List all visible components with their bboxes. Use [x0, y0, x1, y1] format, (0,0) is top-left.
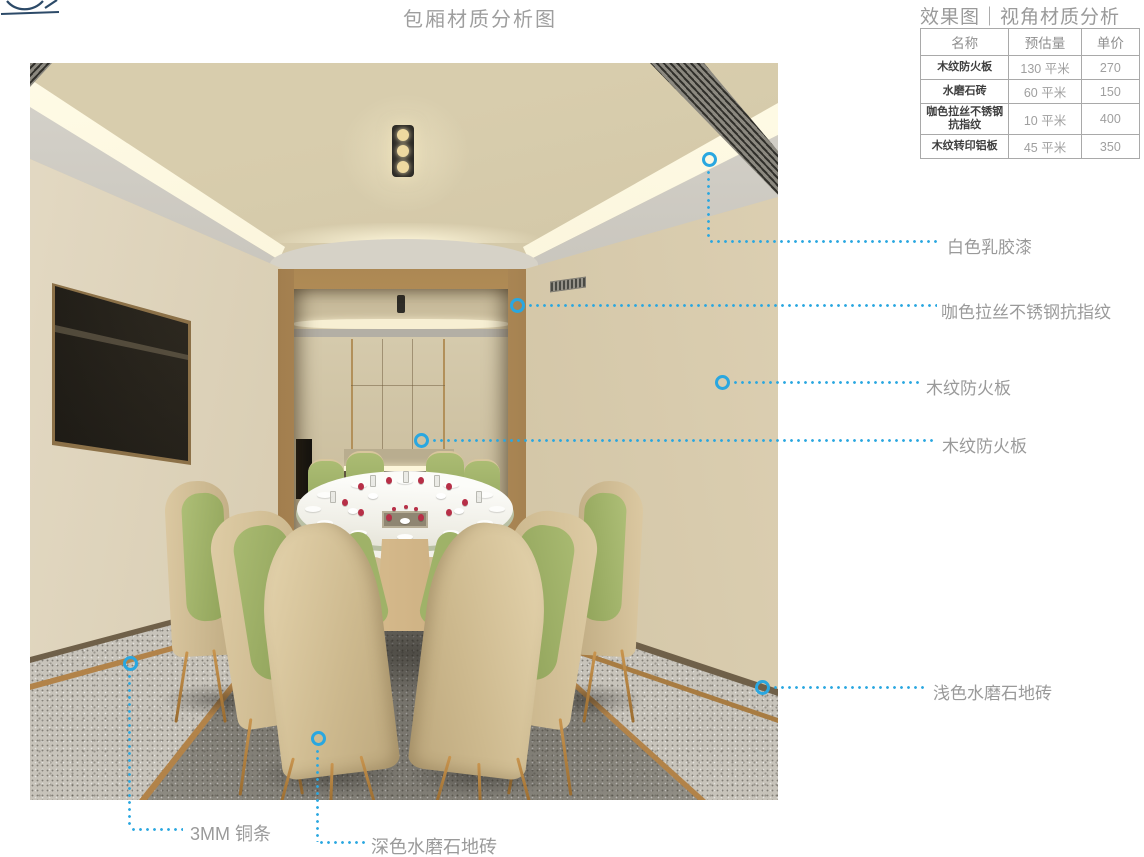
wine-glass [358, 483, 364, 490]
rendering-image [30, 63, 778, 800]
material-name: 水磨石砖 [921, 80, 1009, 104]
callout-line [527, 304, 937, 307]
callout-line [708, 240, 940, 243]
callout-marker [702, 152, 717, 167]
bowl [436, 493, 446, 499]
wine-glass [418, 514, 424, 521]
callout-line [128, 673, 131, 829]
callout-marker [311, 731, 326, 746]
flower-decor [392, 507, 396, 511]
callout-line [772, 686, 928, 689]
material-price: 350 [1081, 135, 1139, 159]
col-header-quantity: 预估量 [1009, 29, 1081, 56]
wine-glass [446, 483, 452, 490]
spotlight-bulb [397, 161, 409, 173]
annotation-label: 木纹防火板 [942, 432, 1027, 457]
callout-line [318, 841, 365, 844]
wine-glass [358, 509, 364, 516]
bowl [454, 508, 464, 514]
plate [489, 506, 505, 512]
table-header-row: 名称 预估量 单价 [921, 29, 1140, 56]
bowl [368, 493, 378, 499]
callout-marker [715, 375, 730, 390]
spotlight-bulb [397, 129, 409, 141]
callout-line [431, 439, 937, 442]
wine-glass [342, 499, 348, 506]
material-name: 咖色拉丝不锈钢抗指纹 [921, 104, 1009, 135]
logo-fragment [0, 0, 62, 18]
callout-marker [755, 680, 770, 695]
bowl [348, 508, 358, 514]
material-quantity: 45 平米 [1009, 135, 1081, 159]
table-row: 水磨石砖 60 平米 150 [921, 80, 1140, 104]
water-glass [403, 471, 409, 483]
water-glass [370, 475, 376, 487]
table-row: 木纹防火板 130 平米 270 [921, 56, 1140, 80]
callout-marker [510, 298, 525, 313]
col-header-name: 名称 [921, 29, 1009, 56]
wine-glass [386, 477, 392, 484]
material-price: 270 [1081, 56, 1139, 80]
plate [305, 506, 321, 512]
annotation-label: 木纹防火板 [926, 374, 1011, 399]
annotation-label: 3MM 铜条 [190, 820, 271, 846]
callout-line [732, 381, 920, 384]
flower-decor [404, 505, 408, 509]
material-name: 木纹防火板 [921, 56, 1009, 80]
callout-marker [414, 433, 429, 448]
legend-title: 效果图｜视角材质分析 [920, 2, 1120, 29]
material-price: 400 [1081, 104, 1139, 135]
material-quantity: 10 平米 [1009, 104, 1081, 135]
material-analysis-board: 包厢材质分析图 效果图｜视角材质分析 名称 预估量 单价 木纹防火板 130 平… [0, 0, 1144, 857]
annotation-label: 深色水磨石地砖 [371, 833, 497, 857]
page-title: 包厢材质分析图 [340, 3, 620, 32]
annotation-label: 咖色拉丝不锈钢抗指纹 [941, 298, 1111, 323]
material-name: 木纹转印铝板 [921, 135, 1009, 159]
callout-line [130, 828, 183, 831]
annotation-label: 浅色水磨石地砖 [933, 679, 1052, 704]
table-row: 木纹转印铝板 45 平米 350 [921, 135, 1140, 159]
col-header-price: 单价 [1081, 29, 1139, 56]
materials-table: 名称 预估量 单价 木纹防火板 130 平米 270 水磨石砖 60 平米 15… [920, 28, 1140, 159]
material-quantity: 60 平米 [1009, 80, 1081, 104]
spotlight-bulb [397, 145, 409, 157]
water-glass [330, 491, 336, 503]
callout-marker [123, 656, 138, 671]
callout-line [316, 748, 319, 842]
bowl [400, 518, 410, 524]
wine-glass [418, 477, 424, 484]
flower-decor [414, 507, 418, 511]
wine-glass [462, 499, 468, 506]
callout-line [707, 169, 710, 241]
ceiling-light-fixture [392, 125, 414, 177]
water-glass [476, 491, 482, 503]
material-price: 150 [1081, 80, 1139, 104]
table-row: 咖色拉丝不锈钢抗指纹 10 平米 400 [921, 104, 1140, 135]
wine-glass [386, 514, 392, 521]
annotation-label: 白色乳胶漆 [947, 233, 1032, 258]
material-quantity: 130 平米 [1009, 56, 1081, 80]
water-glass [434, 475, 440, 487]
wine-glass [446, 509, 452, 516]
